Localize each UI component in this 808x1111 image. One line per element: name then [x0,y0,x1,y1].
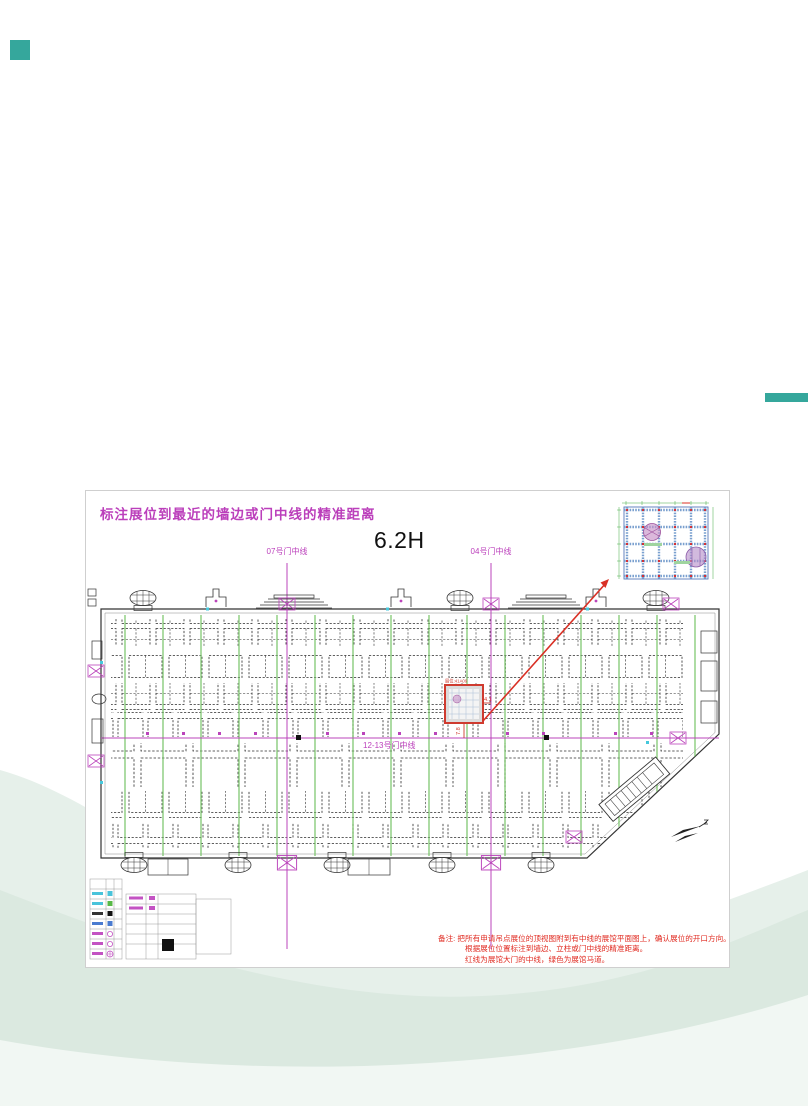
booth-tag: 展位:41A09 [445,678,468,685]
notes-line-1: 备注: 把所有申请吊点展位的顶视图附到有中线的展馆平面图上，确认展位的开口方向。 [438,934,738,944]
notes-line-3: 红线为展馆大门的中线，绿色为展馆马道。 [465,955,738,965]
floorplan-sheet: 展位:41A09 4.1 7.8 [85,490,730,968]
door07-centerline-label: 07号门中线 [227,546,347,557]
right-accent-bar [765,393,808,402]
north-arrow-icon [671,820,708,842]
booth-grid [111,619,683,848]
notes-line-2: 根据展位位置标注到墙边、立柱或门中线的精准距离。 [465,944,738,954]
distance-to-door1213: 7.8 [456,727,462,735]
corner-accent-square [10,40,30,60]
inset-booth-detail [617,501,713,579]
notes-block: 备注: 把所有申请吊点展位的顶视图附到有中线的展馆平面图上，确认展位的开口方向。… [438,934,738,965]
page: { "decor": { "accent_teal": "#35a79c" },… [0,0,808,1106]
hall-height-label: 6.2H [374,527,425,554]
highlight-booth: 展位:41A09 [445,678,483,724]
distance-to-door04: 4.1 [484,697,492,703]
entrance-glyphs-top [88,589,669,611]
floorplan-drawing: 展位:41A09 4.1 7.8 [86,491,731,969]
door04-centerline-label: 04号门中线 [431,546,551,557]
legend-table [90,879,231,959]
door1213-centerline-label: 12-13号门中线 [363,740,415,751]
plan-title: 标注展位到最近的墙边或门中线的精准距离 [100,503,376,523]
